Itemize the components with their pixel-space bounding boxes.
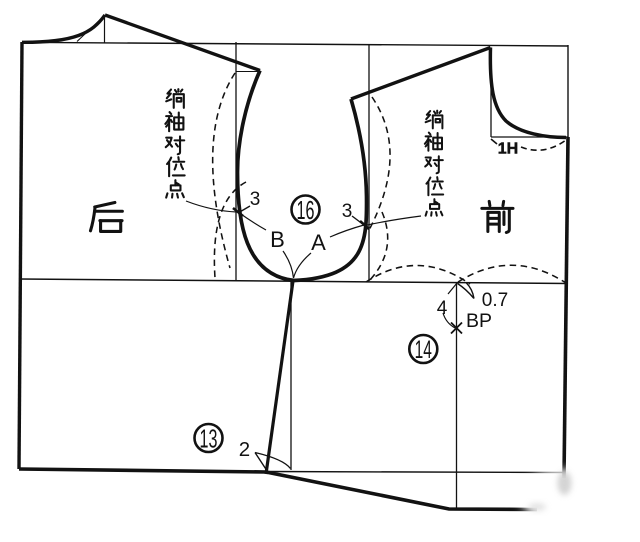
- svg-text:3: 3: [342, 201, 353, 222]
- svg-text:13: 13: [200, 423, 218, 453]
- svg-text:1H: 1H: [498, 141, 518, 158]
- svg-text:A: A: [311, 230, 326, 255]
- svg-text:4: 4: [437, 298, 448, 319]
- svg-text:14: 14: [415, 336, 432, 364]
- svg-text:0.7: 0.7: [482, 290, 508, 311]
- svg-text:3: 3: [250, 189, 261, 210]
- svg-text:2: 2: [239, 438, 250, 461]
- svg-text:B: B: [270, 227, 285, 252]
- svg-text:16: 16: [297, 195, 315, 225]
- svg-text:BP: BP: [466, 310, 492, 332]
